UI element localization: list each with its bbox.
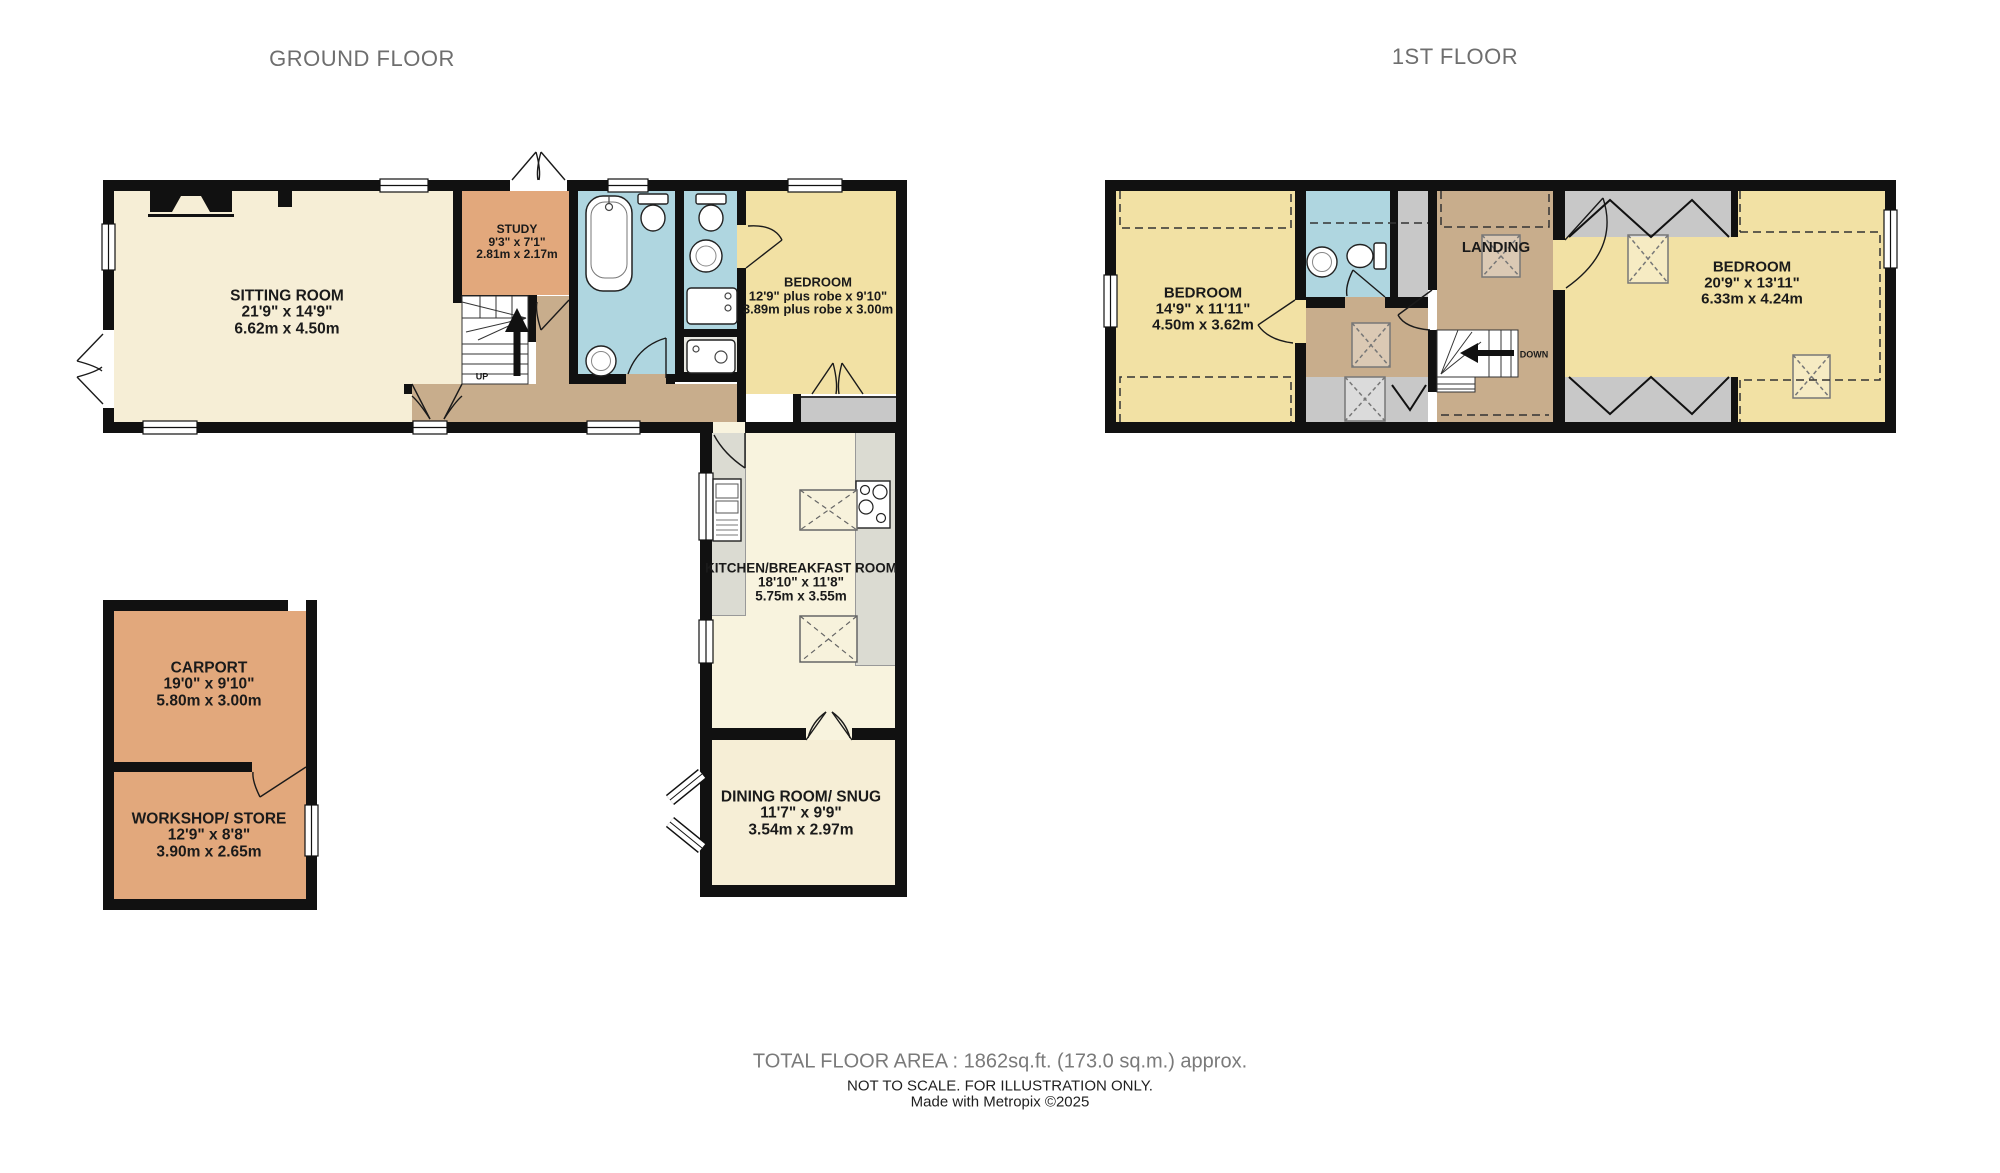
bathtub-icon [586, 196, 632, 291]
carport-label: CARPORT 19'0" x 9'10" 5.80m x 3.00m [156, 661, 261, 710]
study-label: STUDY 9'3" x 7'1" 2.81m x 2.17m [476, 223, 557, 261]
sitting-room-label: SITTING ROOM 21'9" x 14'9" 6.62m x 4.50m [230, 289, 344, 338]
landing-label: LANDING [1462, 240, 1530, 256]
stairs-down-label: DOWN [1520, 350, 1549, 359]
fireplace-icon [148, 191, 234, 217]
kitchen-sink-icon [713, 479, 741, 541]
first-bedroom-left-label: BEDROOM 14'9" x 11'11" 4.50m x 3.62m [1152, 285, 1254, 332]
ground-floor-title: GROUND FLOOR [269, 46, 455, 72]
first-floor-title: 1ST FLOOR [1392, 44, 1518, 70]
total-floor-area: TOTAL FLOOR AREA : 1862sq.ft. (173.0 sq.… [753, 1051, 1247, 1074]
hob-icon [856, 481, 890, 528]
stairs-up-label: UP [476, 372, 489, 381]
toilet-icon [638, 194, 1386, 269]
kitchen-label: KITCHEN/BREAKFAST ROOM 18'10" x 11'8" 5.… [705, 562, 897, 605]
ground-bedroom-label: BEDROOM 12'9" plus robe x 9'10" 3.89m pl… [743, 276, 893, 317]
stairs-down-icon [1437, 330, 1518, 392]
bay-window-icon [670, 774, 702, 848]
workshop-label: WORKSHOP/ STORE 12'9" x 8'8" 3.90m x 2.6… [132, 812, 287, 861]
disclaimer-text: NOT TO SCALE. FOR ILLUSTRATION ONLY. [847, 1078, 1153, 1095]
first-bedroom-right-label: BEDROOM 20'9" x 13'11" 6.33m x 4.24m [1701, 259, 1803, 306]
dining-label: DINING ROOM/ SNUG 11'7" x 9'9" 3.54m x 2… [721, 790, 881, 839]
wall-openings [103, 180, 1565, 772]
walls [103, 180, 1896, 910]
floorplan-canvas: GROUND FLOOR 1ST FLOOR SITTING ROOM 21'9… [0, 0, 2000, 1173]
plan-linework [0, 0, 2000, 1173]
stairs-up-icon [462, 296, 529, 384]
credit-text: Made with Metropix ©2025 [911, 1094, 1090, 1111]
